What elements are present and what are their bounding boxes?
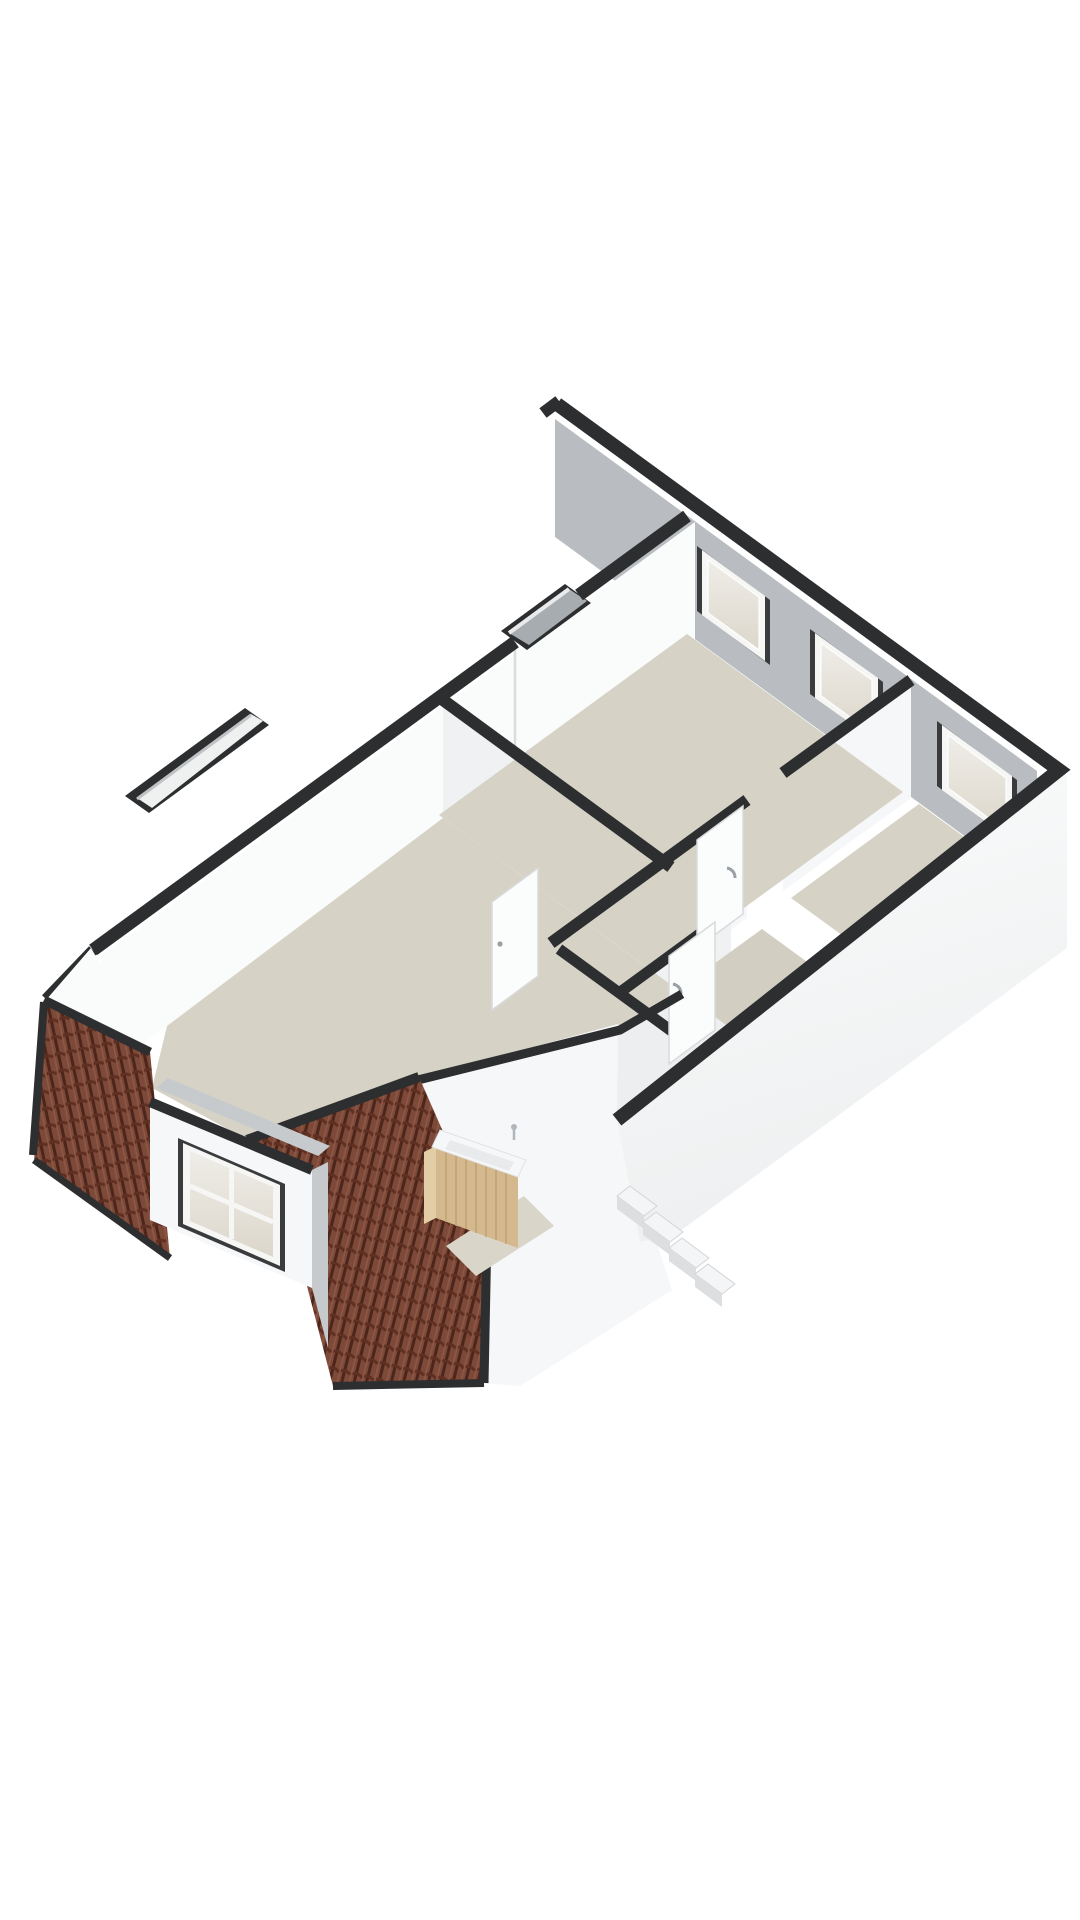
floorplan-canvas bbox=[0, 0, 1080, 1920]
slot-inner bbox=[137, 714, 263, 808]
vanity-side bbox=[424, 1146, 436, 1224]
faucet-head bbox=[511, 1124, 517, 1130]
floorplan-3d-render bbox=[0, 0, 1080, 1920]
slot-shadow bbox=[137, 715, 251, 799]
door-handle-icon bbox=[497, 941, 502, 946]
roof-eave-band bbox=[333, 1383, 484, 1386]
roof-tiles bbox=[34, 1002, 170, 1258]
stair-step bbox=[695, 1264, 735, 1307]
roof-slot-opening bbox=[125, 708, 269, 813]
